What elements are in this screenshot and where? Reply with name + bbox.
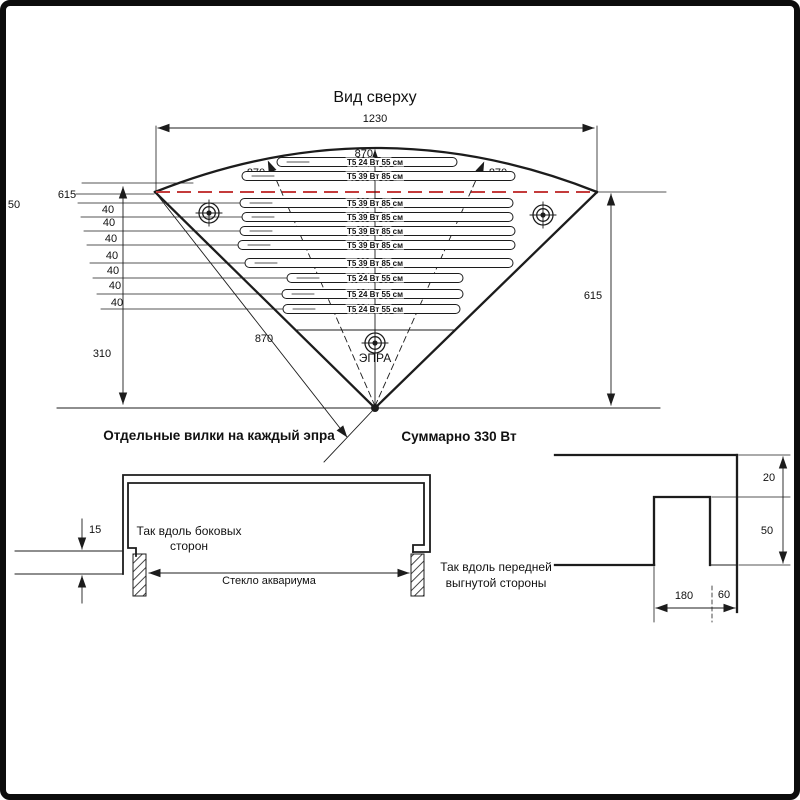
lamp-label: Т5 39 Вт 85 см (347, 172, 403, 181)
drawing-sheet: Вид сверху 1230 870 870 (0, 0, 800, 800)
top-view-title: Вид сверху (333, 89, 416, 106)
lamp-row: Т5 24 Вт 55 см (282, 290, 463, 300)
lamp-label: Т5 24 Вт 55 см (347, 290, 403, 299)
lamp-label: Т5 39 Вт 85 см (347, 227, 403, 236)
dim-40-6: 40 (109, 280, 121, 292)
front-arc (155, 148, 597, 192)
note-total-wattage: Суммарно 330 Вт (401, 429, 517, 444)
glass-span-arrow: Стекло аквариума (149, 573, 409, 587)
lamp-row: Т5 39 Вт 85 см (240, 199, 513, 209)
mounting-target-icon (196, 200, 222, 226)
dim-40-3: 40 (105, 233, 117, 245)
glass-pane-left (133, 554, 146, 596)
dim-180-label: 180 (675, 590, 693, 602)
lamp-label: Т5 39 Вт 85 см (347, 213, 403, 222)
dim-310-left: 310 (93, 348, 111, 360)
lamp-label: Т5 24 Вт 55 см (347, 274, 403, 283)
ballast-label: ЭПРА (359, 351, 391, 365)
lamp-row: Т5 39 Вт 85 см (245, 259, 513, 269)
glass-label: Стекло аквариума (222, 575, 317, 587)
dim-615-right: 615 (584, 290, 602, 302)
sheet-border (3, 3, 797, 797)
lamp-row: Т5 39 Вт 85 см (242, 213, 513, 223)
dim-40-2: 40 (103, 217, 115, 229)
dim-40-5: 40 (107, 265, 119, 277)
dim-50-left: 50 (8, 199, 20, 211)
lamp-row: Т5 24 Вт 55 см (287, 274, 463, 284)
dimension-20-50: 20 50 (761, 457, 783, 563)
dim-60-label: 60 (718, 589, 730, 601)
dimension-depth-right: 615 (584, 192, 666, 405)
side-section: 15 Так вдоль боковых сторон Стекло аквар… (15, 475, 430, 603)
front-note-line1: Так вдоль передней (440, 560, 552, 574)
dimension-radius-left: 870 (247, 161, 375, 406)
dimension-15: 15 (82, 519, 101, 603)
note-separate-plugs: Отдельные вилки на каждый эпра (103, 428, 335, 443)
dim-15-label: 15 (89, 524, 101, 536)
lamp-row: Т5 24 Вт 55 см (283, 305, 460, 315)
side-note-line2: сторон (170, 539, 208, 553)
lamp-rows: Т5 24 Вт 55 см Т5 39 Вт 85 см Т5 39 Вт 8… (238, 158, 515, 315)
dimension-180-60: 180 60 (654, 567, 735, 622)
top-view: Вид сверху 1230 870 870 (8, 89, 666, 462)
dim-50-label: 50 (761, 525, 773, 537)
profile-bump (654, 497, 710, 565)
mounting-target-icon (530, 202, 556, 228)
side-note-line1: Так вдоль боковых (137, 524, 242, 538)
lamp-label: Т5 39 Вт 85 см (347, 241, 403, 250)
lamp-label: Т5 39 Вт 85 см (347, 199, 403, 208)
lamp-row: Т5 39 Вт 85 см (240, 227, 515, 237)
dim-radius-edge-label: 870 (255, 333, 273, 345)
front-note-line2: выгнутой стороны (446, 576, 547, 590)
dim-615-left: 615 (58, 189, 76, 201)
lamp-label: Т5 24 Вт 55 см (347, 158, 403, 167)
front-section: 20 50 180 60 Так вдоль передней выгнутой… (440, 455, 790, 622)
dim-40-4: 40 (106, 250, 118, 262)
lamp-row: Т5 39 Вт 85 см (242, 172, 515, 182)
glass-pane-right (411, 554, 424, 596)
lamp-label: Т5 39 Вт 85 см (347, 259, 403, 268)
dim-width-label: 1230 (363, 113, 387, 125)
lamp-row: Т5 24 Вт 55 см (277, 158, 457, 168)
dim-40-1: 40 (102, 204, 114, 216)
lamp-row: Т5 39 Вт 85 см (238, 241, 515, 251)
lamp-label: Т5 24 Вт 55 см (347, 305, 403, 314)
dim-40-7: 40 (111, 297, 123, 309)
dim-20-label: 20 (763, 472, 775, 484)
technical-drawing: Вид сверху 1230 870 870 (0, 0, 800, 800)
